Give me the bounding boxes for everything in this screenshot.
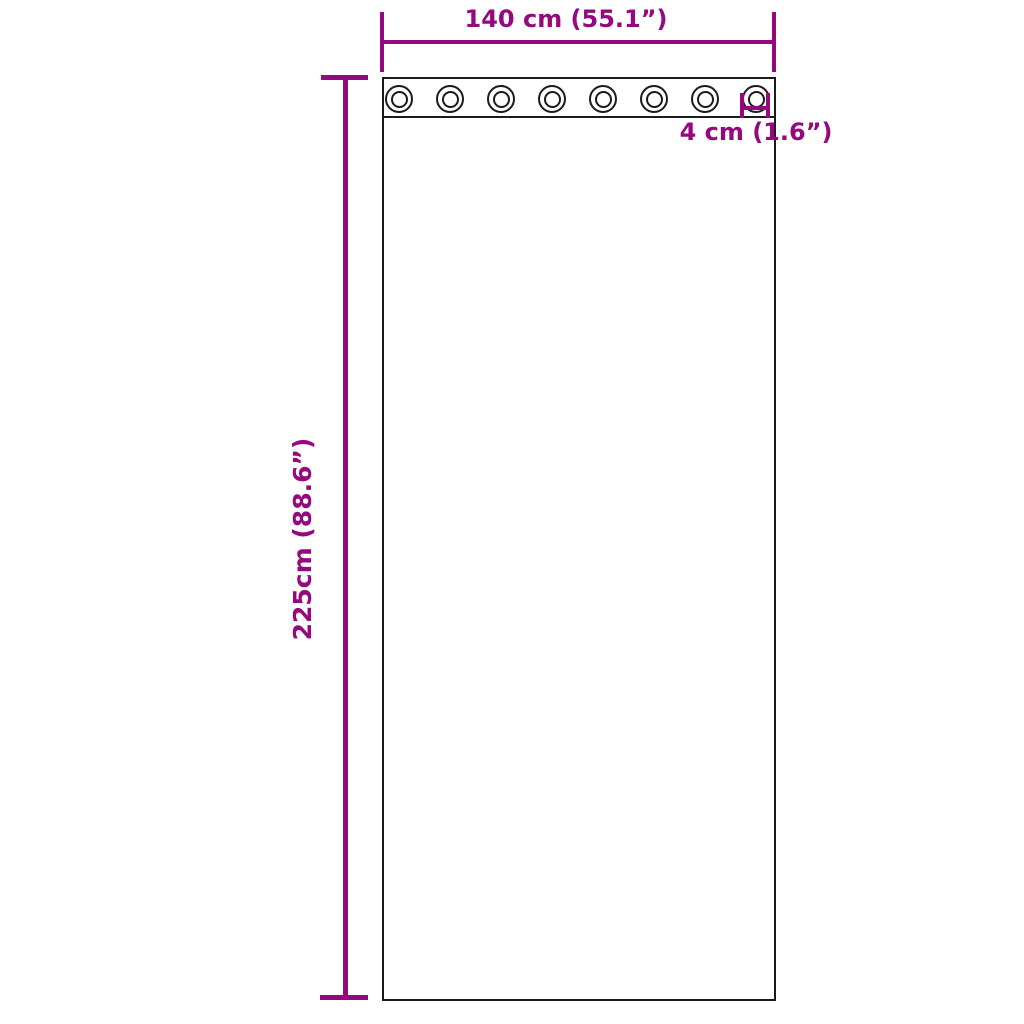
height-dimension-top-tick (321, 75, 368, 80)
width-dimension-right-tick (772, 12, 776, 72)
grommet-dimension-bar (740, 106, 770, 110)
curtain-panel-outline (382, 77, 776, 1001)
dimension-diagram: 140 cm (55.1”) 225cm (88.6”) 4 cm (1.6”) (0, 0, 1024, 1024)
height-dimension-bottom-tick (320, 995, 368, 1000)
height-dimension-label: 225cm (88.6”) (288, 419, 318, 659)
grommet-diameter-label: 4 cm (1.6”) (640, 119, 872, 145)
width-dimension-label: 140 cm (55.1”) (369, 7, 763, 31)
height-dimension-line (343, 77, 348, 998)
width-dimension-line (380, 40, 776, 44)
